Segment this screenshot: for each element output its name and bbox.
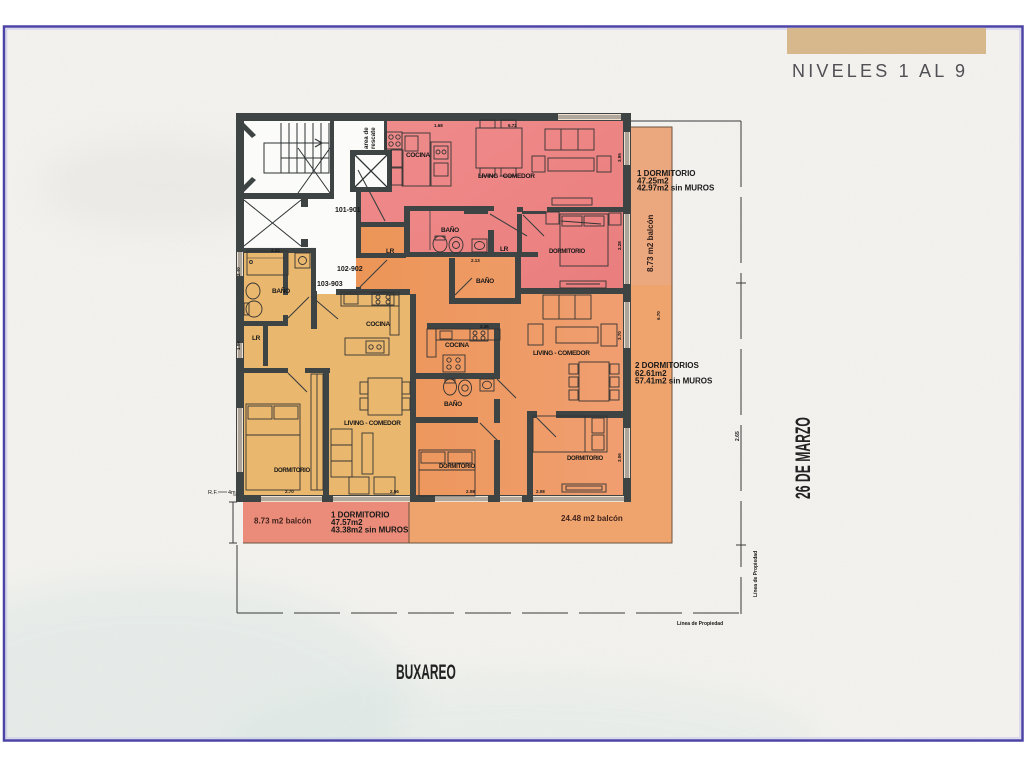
- svg-text:8.73 m2 balcón: 8.73 m2 balcón: [646, 215, 655, 272]
- svg-text:LR: LR: [252, 335, 261, 342]
- svg-text:BUXAREO: BUXAREO: [396, 661, 456, 684]
- svg-text:2.70: 2.70: [285, 489, 294, 494]
- svg-text:8.73 m2 balcón: 8.73 m2 balcón: [254, 517, 311, 526]
- svg-text:LR: LR: [500, 246, 509, 253]
- svg-text:COCINA: COCINA: [366, 321, 390, 328]
- svg-text:LR: LR: [386, 248, 395, 255]
- svg-text:2.22: 2.22: [271, 248, 280, 253]
- svg-text:BAÑO: BAÑO: [272, 286, 290, 295]
- svg-text:BAÑO: BAÑO: [444, 399, 462, 408]
- svg-text:Línea de Propiedad: Línea de Propiedad: [753, 551, 759, 597]
- svg-text:COCINA: COCINA: [406, 152, 430, 159]
- svg-text:26 DE MARZO: 26 DE MARZO: [790, 417, 814, 499]
- svg-text:3.70: 3.70: [617, 331, 622, 340]
- svg-text:DORMITORIO: DORMITORIO: [274, 468, 311, 474]
- svg-text:3.06: 3.06: [617, 453, 622, 462]
- svg-text:area de: area de: [363, 127, 370, 149]
- svg-text:2.40: 2.40: [236, 267, 241, 276]
- svg-text:2.65: 2.65: [735, 431, 741, 441]
- svg-text:2.56: 2.56: [390, 489, 399, 494]
- svg-text:LIVING - COMEDOR: LIVING - COMEDOR: [533, 350, 590, 357]
- svg-text:102-902: 102-902: [337, 266, 363, 273]
- svg-text:BAÑO: BAÑO: [476, 276, 494, 285]
- svg-text:3.95: 3.95: [617, 153, 622, 162]
- svg-text:103-903: 103-903: [317, 281, 343, 288]
- svg-text:LIVING - COMEDOR: LIVING - COMEDOR: [344, 420, 401, 427]
- svg-text:6.70: 6.70: [656, 311, 661, 320]
- svg-text:57.41m2 sin MUROS: 57.41m2 sin MUROS: [635, 377, 713, 386]
- svg-text:R.F.: R.F.: [208, 490, 218, 496]
- svg-text:LIVING - COMEDOR: LIVING - COMEDOR: [478, 173, 535, 180]
- svg-text:1.09: 1.09: [236, 341, 241, 350]
- svg-text:2.13: 2.13: [471, 258, 480, 263]
- svg-text:42.97m2 sin MUROS: 42.97m2 sin MUROS: [637, 184, 715, 193]
- svg-text:6.72: 6.72: [508, 123, 517, 128]
- svg-text:DORMITORIO: DORMITORIO: [567, 456, 604, 462]
- svg-text:DORMITORIO: DORMITORIO: [439, 464, 476, 470]
- svg-text:2.08: 2.08: [466, 489, 475, 494]
- svg-text:DORMITORIO: DORMITORIO: [549, 249, 586, 255]
- svg-text:101-901: 101-901: [335, 207, 361, 214]
- svg-text:2.08: 2.08: [536, 489, 545, 494]
- svg-text:2.28: 2.28: [617, 241, 622, 250]
- svg-text:1.68: 1.68: [434, 123, 443, 128]
- svg-text:NIVELES 1 AL 9: NIVELES 1 AL 9: [792, 61, 968, 81]
- svg-text:BAÑO: BAÑO: [441, 225, 459, 234]
- svg-text:2.35: 2.35: [480, 324, 489, 329]
- svg-text:Línea de Propiedad: Línea de Propiedad: [677, 621, 723, 627]
- svg-text:COCINA: COCINA: [445, 342, 469, 349]
- svg-text:24.48 m2 balcón: 24.48 m2 balcón: [561, 514, 623, 523]
- svg-text:43.38m2 sin MUROS: 43.38m2 sin MUROS: [331, 526, 409, 535]
- svg-text:rescate: rescate: [370, 127, 377, 149]
